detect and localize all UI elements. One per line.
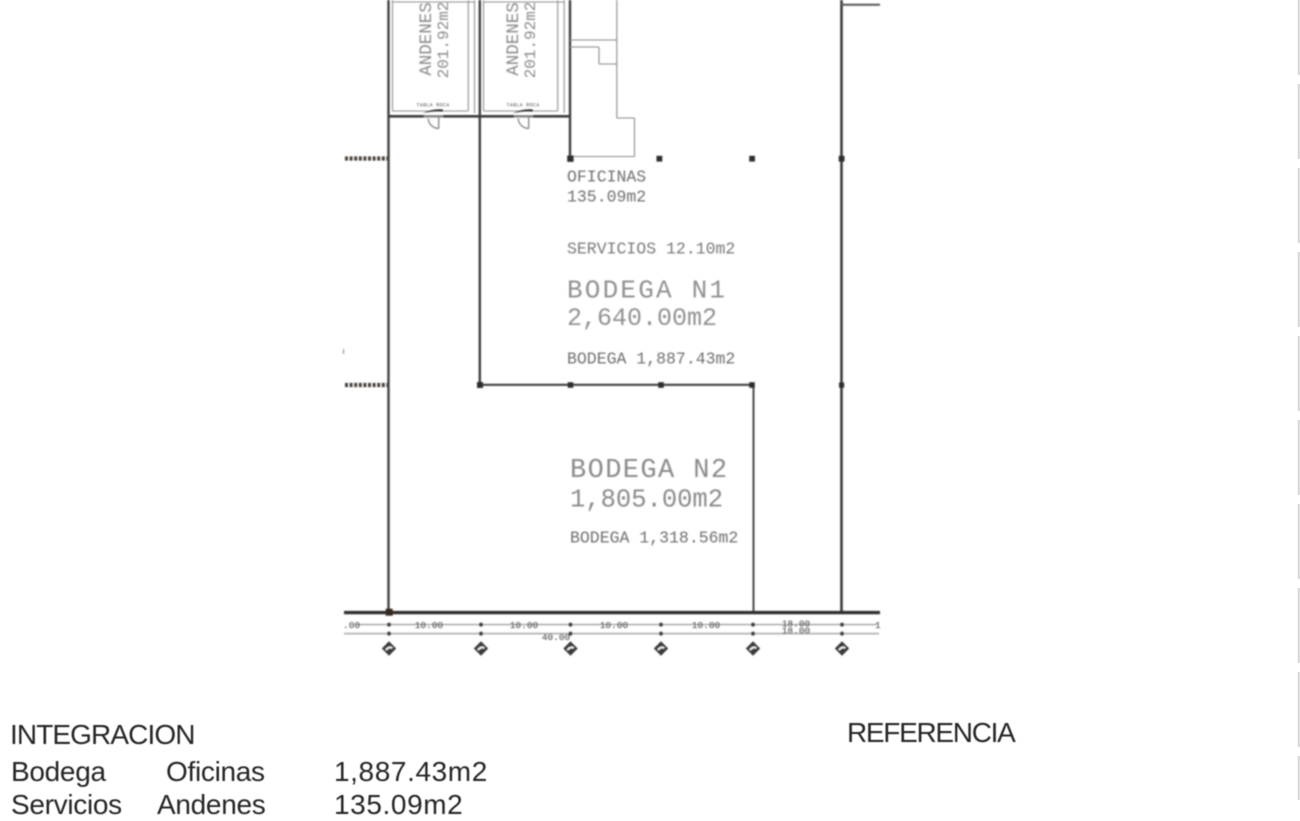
svg-text:10.00: 10.00 bbox=[600, 620, 629, 631]
svg-text:TABLA ROCA: TABLA ROCA bbox=[506, 103, 539, 109]
svg-text:BODEGA N2: BODEGA N2 bbox=[570, 456, 728, 486]
svg-text:BODEGA N1: BODEGA N1 bbox=[567, 276, 727, 306]
svg-text:1,805.00m2: 1,805.00m2 bbox=[570, 486, 723, 515]
svg-text:SERVICIOS 12.10m2: SERVICIOS 12.10m2 bbox=[567, 240, 735, 259]
svg-text:BODEGA 1,318.56m2: BODEGA 1,318.56m2 bbox=[570, 529, 738, 548]
svg-text:BODEGA 1,887.43m2: BODEGA 1,887.43m2 bbox=[567, 350, 735, 369]
svg-text:.00: .00 bbox=[343, 620, 360, 631]
svg-text:TABLA ROCA: TABLA ROCA bbox=[416, 103, 449, 109]
svg-text:201.92m2: 201.92m2 bbox=[522, 2, 540, 79]
svg-text:1: 1 bbox=[875, 620, 881, 631]
svg-text:ANDENES: ANDENES bbox=[504, 2, 524, 76]
svg-text:10.00: 10.00 bbox=[692, 620, 721, 631]
svg-text:10.00: 10.00 bbox=[415, 620, 444, 631]
svg-text:135.09m2: 135.09m2 bbox=[567, 188, 646, 207]
svg-text:18.00: 18.00 bbox=[782, 625, 811, 636]
svg-text:10.00: 10.00 bbox=[510, 620, 539, 631]
svg-text:2,640.00m2: 2,640.00m2 bbox=[567, 304, 717, 333]
svg-text:40.00: 40.00 bbox=[542, 632, 571, 643]
svg-text:OFICINAS: OFICINAS bbox=[567, 168, 646, 187]
svg-text:ANDENES: ANDENES bbox=[417, 2, 437, 76]
svg-text:201.92m2: 201.92m2 bbox=[435, 2, 453, 79]
